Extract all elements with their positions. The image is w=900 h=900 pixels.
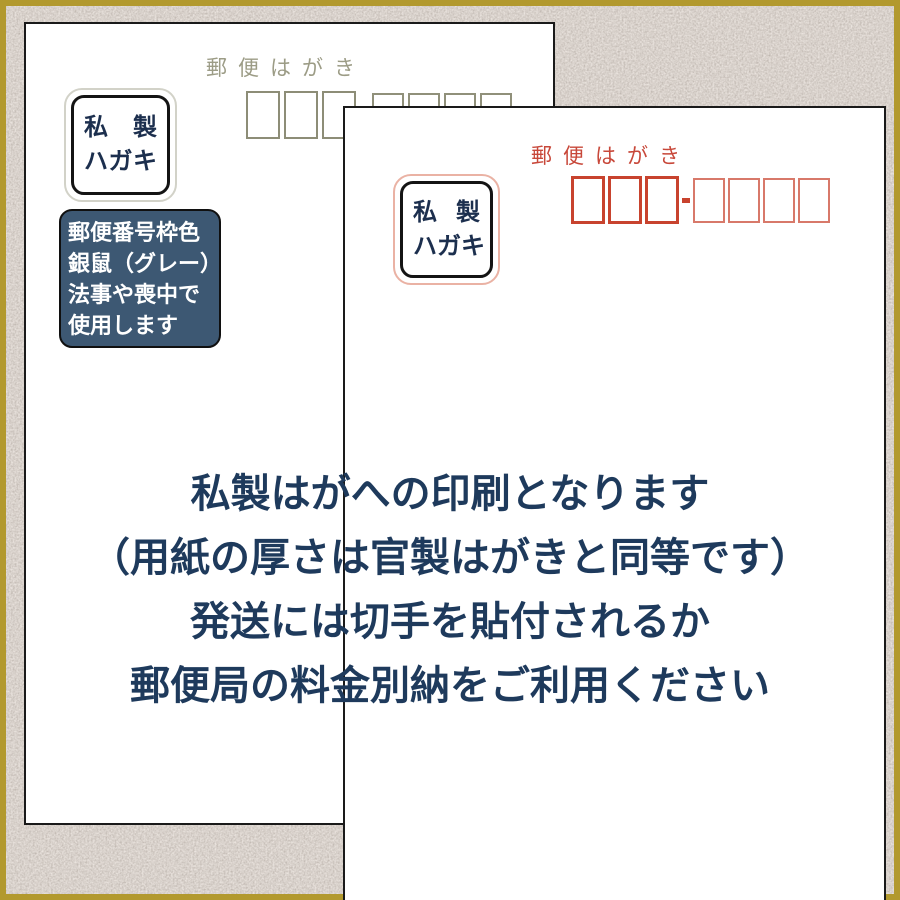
postal-code-box: [284, 91, 318, 139]
speckled-texture-background: 郵便はがき 私製 ハガキ 郵便番号枠色 銀鼠（グレー） 法事や: [6, 6, 894, 894]
caption-text: 私製はがへの印刷となります （用紙の厚さは官製はがきと同等です） 発送には切手を…: [6, 462, 894, 718]
caption-line: （用紙の厚さは官製はがきと同等です）: [6, 526, 894, 590]
caption-line: 私製はがへの印刷となります: [6, 462, 894, 526]
postal-code-box: [763, 178, 795, 223]
caption-line: 郵便局の料金別納をご利用ください: [6, 654, 894, 718]
label-line-1: 私製: [84, 111, 157, 145]
postal-code-box: [571, 176, 605, 224]
shisei-hagaki-label: 私製 ハガキ: [393, 174, 500, 285]
label-line-1: 私製: [413, 196, 480, 230]
postcard-header-text: 郵便はがき: [206, 52, 366, 82]
postal-code-box: [608, 176, 642, 224]
postcard-header-text: 郵便はがき: [531, 140, 691, 170]
caption-line: 発送には切手を貼付されるか: [6, 590, 894, 654]
postal-code-box: [246, 91, 280, 139]
postal-code-box: [693, 178, 725, 223]
label-line-2: ハガキ: [84, 145, 157, 179]
note-line: 銀鼠（グレー）: [68, 248, 212, 279]
label-line-2: ハガキ: [413, 230, 480, 264]
note-line: 使用します: [68, 310, 212, 341]
postal-code-hyphen: [682, 198, 690, 203]
postal-code-box: [798, 178, 830, 223]
gray-frame-note-box: 郵便番号枠色 銀鼠（グレー） 法事や喪中で 使用します: [59, 209, 221, 348]
product-image: 郵便はがき 私製 ハガキ 郵便番号枠色 銀鼠（グレー） 法事や: [0, 0, 900, 900]
note-line: 法事や喪中で: [68, 279, 212, 310]
postal-code-boxes-red: [571, 176, 830, 224]
shisei-hagaki-label: 私製 ハガキ: [64, 88, 177, 202]
postal-code-box: [645, 176, 679, 224]
note-line: 郵便番号枠色: [68, 217, 212, 248]
postal-code-box: [728, 178, 760, 223]
